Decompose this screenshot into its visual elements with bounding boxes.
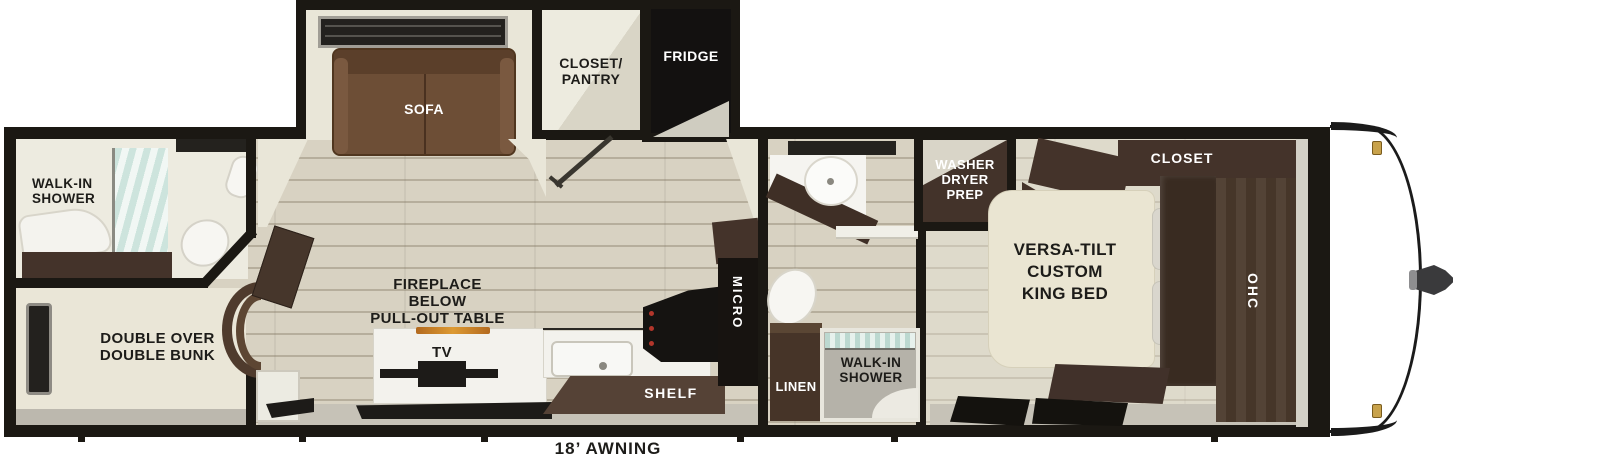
bed-bench bbox=[1048, 364, 1170, 404]
wall-right bbox=[1305, 127, 1330, 437]
bunk-floor-strip bbox=[16, 409, 246, 425]
bedroom-wardrobe bbox=[1160, 176, 1216, 386]
stabilizer-tick bbox=[481, 437, 488, 442]
micro-label: MICRO bbox=[729, 266, 744, 340]
stabilizer-tick bbox=[891, 437, 898, 442]
shelf-label: SHELF bbox=[626, 386, 716, 402]
stabilizer-tick bbox=[737, 437, 744, 442]
linen-cabinet bbox=[770, 323, 822, 421]
fireplace-label: FIREPLACE BELOW PULL-OUT TABLE bbox=[330, 276, 545, 327]
wall-bath-left bbox=[758, 136, 768, 430]
mid-shower-glass bbox=[825, 333, 915, 350]
bath-sink-drain bbox=[827, 178, 834, 185]
clearance-marker bbox=[1372, 404, 1382, 418]
hitch-notch bbox=[1409, 270, 1417, 290]
hitch bbox=[1415, 265, 1453, 295]
wall-top-right bbox=[733, 127, 1323, 139]
bath-half-wall bbox=[836, 226, 918, 239]
rear-shower-glass bbox=[112, 148, 168, 268]
slideout-window bbox=[318, 16, 508, 48]
window-glass-line bbox=[325, 35, 501, 37]
king-bed-label: VERSA-TILT CUSTOM KING BED bbox=[984, 239, 1146, 305]
stabilizer-tick bbox=[1211, 437, 1218, 442]
fireplace-flame-strip bbox=[416, 327, 490, 334]
wall-bottom bbox=[4, 425, 1330, 437]
wall-top-left bbox=[4, 127, 307, 139]
wall-rearbath-right bbox=[246, 136, 256, 238]
closet-pantry-label: CLOSET/ PANTRY bbox=[538, 56, 644, 88]
window-glass-line bbox=[325, 25, 501, 27]
clearance-marker bbox=[1372, 141, 1382, 155]
floorplan-canvas: SOFA CLOSET/ PANTRY FRIDGE WALK-IN SHOWE… bbox=[0, 0, 1600, 460]
range-knob bbox=[649, 326, 654, 331]
rear-shower-label: WALK-IN SHOWER bbox=[26, 176, 122, 207]
floor-mat bbox=[950, 396, 1030, 426]
kitchen-sink bbox=[551, 341, 633, 377]
bunk-window bbox=[26, 303, 52, 395]
stabilizer-tick bbox=[299, 437, 306, 442]
bedroom-right-trim bbox=[1296, 139, 1308, 427]
fridge-label: FRIDGE bbox=[648, 49, 734, 65]
tv-icon-base bbox=[418, 361, 466, 387]
kitchen-faucet bbox=[599, 362, 607, 370]
awning-label: 18’ AWNING bbox=[498, 439, 718, 458]
tv-label: TV bbox=[420, 344, 464, 361]
rear-bath-vanity bbox=[22, 252, 172, 278]
rear-bath-medicine-cabinet bbox=[176, 139, 248, 152]
mid-shower-label: WALK-IN SHOWER bbox=[826, 355, 916, 386]
front-cap-bottom-arc bbox=[1331, 420, 1397, 436]
wall-rearbath-bunk bbox=[10, 278, 208, 288]
range-knob bbox=[649, 341, 654, 346]
sofa-back-cushion bbox=[334, 50, 514, 74]
linen-label: LINEN bbox=[768, 380, 824, 395]
front-cap-top-arc bbox=[1331, 122, 1397, 138]
stabilizer-tick bbox=[78, 437, 85, 442]
range-knob bbox=[649, 311, 654, 316]
closet-label: CLOSET bbox=[1136, 151, 1228, 167]
ohc-label: OHC bbox=[1244, 262, 1260, 322]
sofa-label: SOFA bbox=[334, 102, 514, 118]
bath-mirror bbox=[788, 141, 896, 155]
sofa: SOFA bbox=[332, 48, 516, 156]
